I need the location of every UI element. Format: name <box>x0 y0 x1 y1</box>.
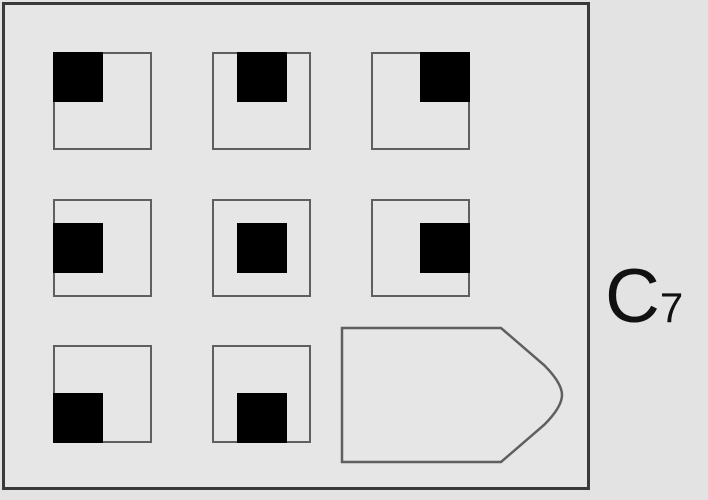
matrix-cell-r3c2 <box>212 345 311 443</box>
filled-square <box>237 52 287 102</box>
matrix-cell-r1c3 <box>371 52 470 150</box>
filled-square <box>237 393 287 443</box>
figure-canvas: C7 <box>0 0 708 500</box>
matrix-cell-r2c2 <box>212 199 311 297</box>
matrix-cell-r3c1 <box>53 345 152 443</box>
label-subscript: 7 <box>660 284 683 331</box>
answer-placeholder-arrow-icon <box>339 325 567 465</box>
matrix-cell-r2c1 <box>53 199 152 297</box>
filled-square <box>53 393 103 443</box>
matrix-cell-r2c3 <box>371 199 470 297</box>
filled-square <box>420 223 470 273</box>
matrix-cell-r1c2 <box>212 52 311 150</box>
filled-square <box>237 223 287 273</box>
matrix-cell-r1c1 <box>53 52 152 150</box>
label-letter: C <box>605 254 660 339</box>
filled-square <box>420 52 470 102</box>
filled-square <box>53 52 103 102</box>
filled-square <box>53 223 103 273</box>
panel-label: C7 <box>605 259 683 335</box>
